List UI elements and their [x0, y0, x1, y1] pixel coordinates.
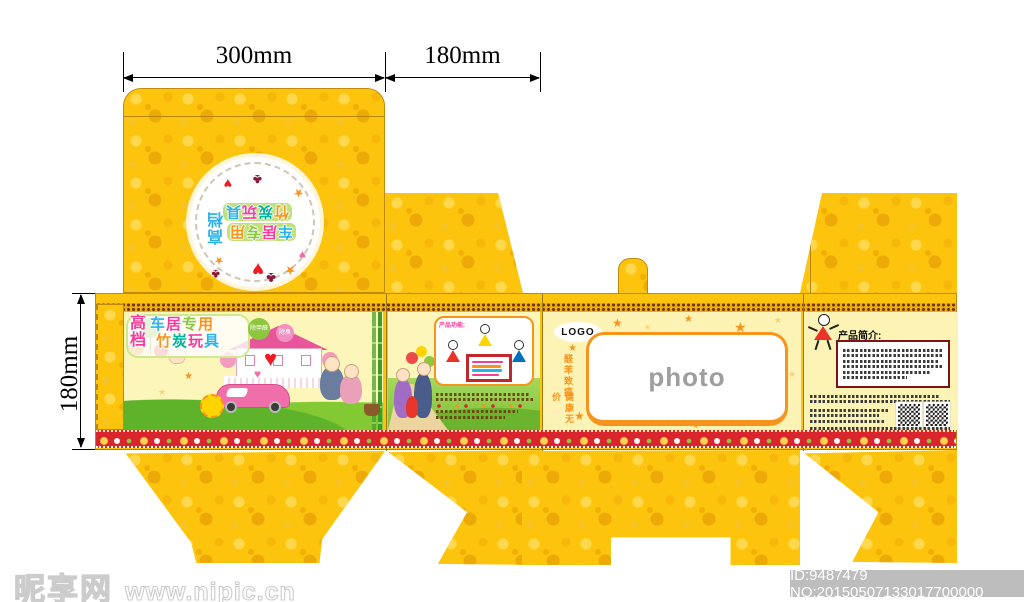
feature-text-block: [436, 390, 534, 421]
heart-icon: ♥: [299, 249, 306, 261]
badge-content: 车 居 专 用 竹 炭 玩 具 高 档 ♥ ♥ ♥ ★: [190, 157, 320, 287]
stick-kid-body: [478, 334, 492, 346]
qr-code: [926, 404, 948, 426]
functions-box: 产品功能:: [434, 316, 534, 386]
bottom-flap-front: [123, 450, 385, 563]
heart-icon: ♥: [224, 177, 232, 191]
panel-back: ★ ★ ★ ★ ★ ★ ★ ★ ★ ★ ★ ★ LOGO 醛苯致癌 健康无价 p…: [542, 312, 801, 430]
main-panel-band: ♥ ♥ ★ ★ 高 档 车 居 专 用 竹 炭 玩: [95, 293, 957, 450]
heart-icon: ♥: [252, 259, 264, 279]
watermark-id-bar: ID:9487479 NO:20150507133017700000: [790, 570, 1024, 597]
arrow-icon: [77, 294, 85, 304]
stick-kid-body: [446, 350, 460, 362]
star-icon: ★: [644, 324, 651, 332]
stick-kid-head: [480, 324, 490, 334]
qr-code: [898, 404, 920, 426]
stick-kid-head: [818, 314, 830, 326]
stick-kid-leg: [814, 340, 819, 350]
sun-icon: [200, 394, 224, 418]
star-icon: ★: [214, 254, 224, 265]
panel-separator: [803, 294, 804, 451]
windshield: [226, 388, 249, 397]
mother-head: [344, 364, 359, 379]
intro-text-box: [836, 340, 950, 388]
stick-kid-leg: [826, 340, 831, 350]
clover-icon: ♣: [266, 270, 276, 285]
title-line1: 车 居 专 用: [150, 317, 213, 332]
lid-crease-line: [124, 116, 384, 117]
stick-kid-arm: [808, 326, 818, 331]
grade-label: 高 档: [130, 316, 146, 350]
dim-tick: [540, 52, 541, 92]
stick-kid-head: [448, 340, 458, 350]
star-icon: ★: [184, 372, 193, 382]
top-flap-left: [385, 193, 523, 293]
star-icon: ★: [684, 315, 693, 325]
stick-kid-head: [514, 340, 524, 350]
dim-line-width: [124, 77, 384, 78]
arrow-icon: [385, 74, 395, 82]
feature-bubble: 除臭: [276, 324, 294, 342]
fold-crease: [810, 193, 811, 293]
slogan-vertical-2: 健康无价: [550, 392, 576, 430]
functions-sign: [466, 354, 512, 382]
badge-grade: 高 档: [207, 209, 223, 243]
top-flap-right: [800, 193, 957, 293]
child-figure: [406, 396, 418, 418]
photo-window: photo: [586, 332, 788, 426]
watermark-site-name: 昵享网: [14, 564, 113, 602]
star-icon: ★: [284, 264, 296, 277]
watermark-logo: 昵享网 www.nipic.cn: [14, 564, 296, 602]
clover-icon: ♣: [253, 173, 262, 187]
glue-flap: [96, 304, 124, 430]
arrow-icon: [77, 438, 85, 448]
heart-icon: ♥: [254, 368, 261, 380]
lid-flap: 车 居 专 用 竹 炭 玩 具 高 档 ♥ ♥ ♥ ★: [123, 88, 385, 293]
bottom-flap-back: [522, 450, 800, 565]
dim-label-depth: 180mm: [385, 42, 540, 70]
arrow-icon: [375, 74, 385, 82]
cut-line: [96, 449, 956, 450]
mother-head: [396, 368, 410, 382]
star-icon: ★: [774, 316, 782, 325]
panel-intro: 产品简介:: [804, 312, 958, 430]
panel-features: 产品功能:: [388, 312, 540, 430]
car-icon: [216, 384, 290, 408]
packaging-dieline-design: 300mm 180mm 180mm 车 居 专 用 竹 炭 玩: [0, 0, 1024, 602]
balloon-icon: [416, 346, 427, 357]
feature-bubble: 除甲醛: [248, 318, 270, 340]
watermark-id-text: ID:9487479 NO:20150507133017700000: [790, 567, 1024, 601]
spec-text-block: [810, 406, 890, 425]
lid-badge: 车 居 专 用 竹 炭 玩 具 高 档 ♥ ♥ ♥ ★: [190, 157, 320, 287]
panel-separator: [542, 294, 543, 451]
toy-basket-icon: [364, 404, 380, 416]
dim-line-depth: [386, 77, 539, 78]
star-icon: ★: [158, 388, 166, 397]
badge-title-line2: 竹 炭 玩 具: [221, 201, 294, 223]
panel-front: ♥ ♥ ★ ★ 高 档 车 居 专 用 竹 炭 玩: [124, 312, 383, 430]
watermark-site-url: www.nipic.cn: [125, 578, 296, 602]
bottom-flap-side-right: [803, 450, 957, 563]
star-icon: ★: [293, 187, 304, 199]
thumb-tab: [618, 258, 648, 294]
lace-border-top: [96, 303, 956, 312]
clover-icon: ♣: [211, 268, 220, 281]
heart-icon: ♥: [264, 348, 277, 370]
decorative-border-bottom: [96, 430, 956, 448]
arrow-icon: [123, 74, 133, 82]
star-icon: ★: [612, 317, 623, 329]
panel-separator: [386, 294, 387, 451]
star-icon: ★: [568, 344, 577, 354]
father-head: [417, 362, 431, 376]
functions-heading: 产品功能:: [439, 320, 465, 329]
badge-title-line1: 车 居 专 用: [225, 221, 298, 243]
arrow-icon: [530, 74, 540, 82]
photo-placeholder-text: photo: [648, 362, 725, 393]
father-head: [324, 356, 340, 372]
star-icon: ★: [788, 370, 796, 379]
stick-kid-body: [512, 350, 526, 362]
dim-label-width: 300mm: [123, 42, 385, 70]
title-line2: 竹 炭 玩 具: [156, 334, 219, 349]
bottom-flap-side-left: [387, 450, 541, 565]
dim-label-height: 180mm: [56, 334, 84, 414]
